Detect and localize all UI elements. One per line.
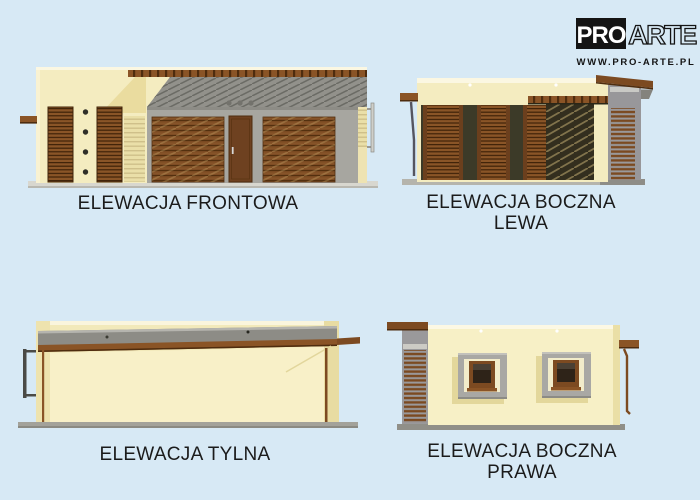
window-2 [536, 352, 591, 403]
front-louver-panel-1 [48, 107, 73, 182]
front-lintel-shadow [147, 107, 358, 110]
entry-door [229, 116, 252, 182]
logo-pro-text: PRO [576, 22, 625, 49]
rear-downspout-left [42, 350, 44, 422]
front-pergola-hatch [147, 77, 367, 107]
front-shaded-louver-strip [124, 116, 145, 182]
front-vent-dots [226, 100, 253, 105]
rear-beam-extension [337, 337, 360, 345]
right-vent-dot-1 [479, 329, 482, 332]
front-louver-panel-2 [97, 107, 122, 182]
right-corner-louver [404, 350, 426, 423]
right-wall-edge-shade [613, 325, 620, 425]
left-gray-strip-highlight [610, 87, 639, 92]
left-elevation-label-line2: LEWA [426, 213, 616, 234]
logo-url-text: WWW.PRO-ARTE.PL [574, 57, 698, 68]
left-elevation-label: ELEWACJA BOCZNA LEWA [426, 192, 616, 234]
left-carport-opening [546, 103, 594, 180]
front-parapet [36, 67, 367, 70]
right-parapet [428, 325, 620, 329]
right-elevation-label: ELEWACJA BOCZNA PRAWA [427, 441, 617, 483]
elevations-drawing [0, 0, 700, 500]
left-vent-dot-1 [468, 83, 471, 86]
front-elevation-label: ELEWACJA FRONTOWA [78, 193, 299, 214]
right-elevation-drawing [387, 322, 639, 430]
rear-wall-bracket [23, 349, 36, 398]
left-vent-dot-2 [554, 83, 557, 86]
garage-door-left [152, 117, 224, 182]
front-right-rail [367, 103, 374, 152]
rear-parapet [36, 321, 339, 325]
right-elevation-label-line1: ELEWACJA BOCZNA [427, 441, 617, 462]
front-left-canopy [20, 116, 37, 124]
left-corner-louver [611, 108, 635, 180]
door-handle [232, 147, 234, 154]
left-louver-panel-1 [423, 105, 463, 180]
right-canopy [619, 340, 639, 349]
left-louver-panel-2 [477, 105, 510, 180]
proarte-logo-mark: PRO ARTE [574, 14, 698, 52]
front-elevation-drawing [20, 67, 378, 188]
rear-inner-wall [50, 347, 324, 422]
left-downspout [411, 102, 414, 176]
left-parapet [417, 78, 608, 83]
garage-door-right [263, 117, 335, 182]
left-pergola-beam [528, 96, 608, 103]
rear-elevation-label-text: ELEWACJA TYLNA [99, 444, 270, 465]
front-right-pier-louver [358, 109, 367, 147]
right-gray-strip-highlight [403, 344, 427, 349]
elevation-sheet: ELEWACJA FRONTOWA ELEWACJA BOCZNA LEWA E… [0, 0, 700, 500]
left-beam-shadow [528, 103, 608, 105]
right-downspout [624, 349, 630, 414]
right-elevation-label-line2: PRAWA [427, 462, 617, 483]
rear-elevation-drawing [18, 321, 360, 428]
rear-downspout-right [325, 348, 328, 422]
window-1 [452, 353, 507, 404]
logo-arte-text: ARTE [628, 20, 696, 50]
front-elevation-label-text: ELEWACJA FRONTOWA [78, 193, 299, 214]
left-elevation-drawing [400, 75, 653, 185]
left-canopy [400, 93, 418, 102]
front-wall-left-highlight [36, 70, 40, 183]
proarte-logo: PRO ARTE WWW.PRO-ARTE.PL [574, 14, 698, 68]
rear-elevation-label: ELEWACJA TYLNA [99, 444, 270, 465]
rear-base-shadow [18, 426, 358, 428]
front-base-shadow [28, 186, 378, 188]
right-vent-dot-2 [555, 329, 558, 332]
front-pergola-beam [128, 70, 367, 77]
left-elevation-label-line1: ELEWACJA BOCZNA [426, 192, 616, 213]
right-roof-fascia [387, 322, 428, 331]
